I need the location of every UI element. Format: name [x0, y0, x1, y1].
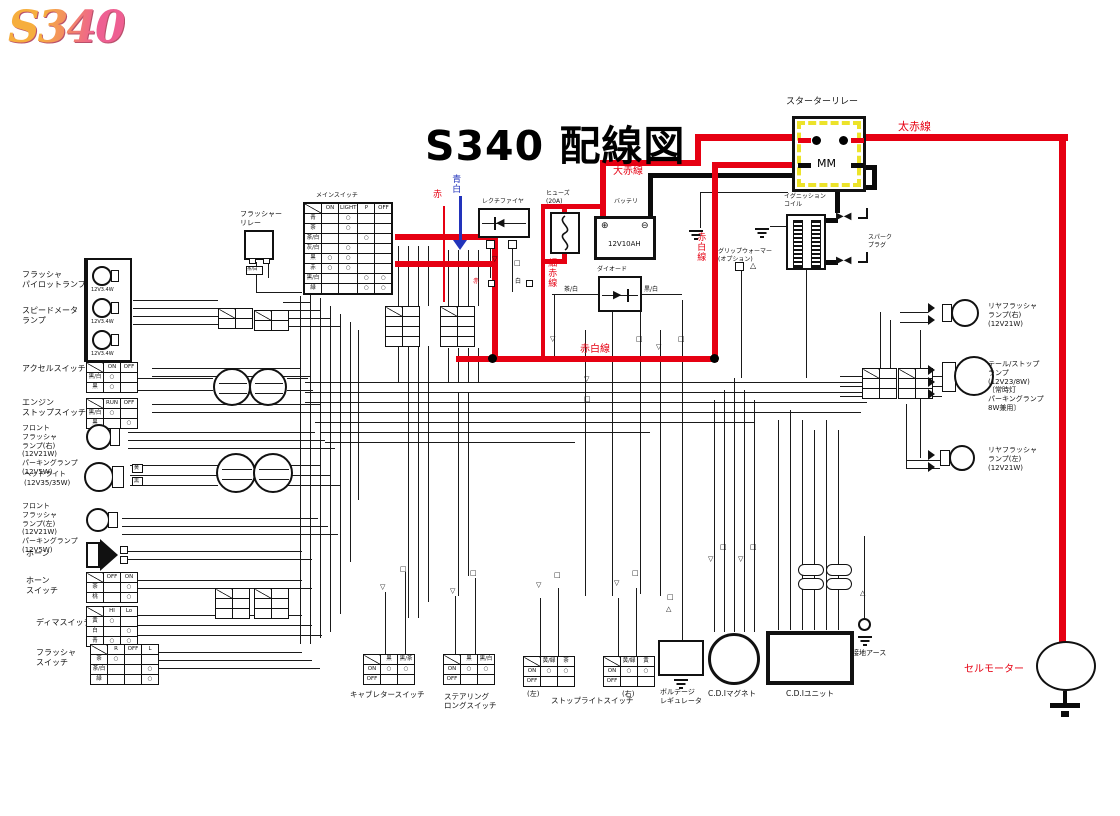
wire [128, 432, 315, 433]
junction-dot [710, 354, 719, 363]
main-switch-table: ONLIGHTPOFF青○茶○茶/白○灰/白○黒○○赤○○黒/白○○緑○○ [303, 202, 393, 295]
page-title: S340 配線図 [425, 112, 685, 172]
bulb-rating: 12V3.4W [91, 351, 114, 357]
table-cell [375, 244, 393, 254]
wire [287, 390, 313, 391]
ignition-coil [786, 214, 826, 270]
capsule-connector [826, 564, 852, 576]
table-cell: 茶 [87, 583, 104, 593]
wire [133, 300, 218, 301]
bullet-connector-icon [928, 450, 935, 460]
relay-contact [839, 136, 848, 145]
relay-terminal [798, 163, 811, 168]
table-cell: ON [524, 667, 541, 677]
table-cell: 黒/白 [87, 373, 104, 383]
starter-relay-label: スターターリレー [786, 97, 858, 108]
table-cell [863, 369, 880, 379]
table-cell [358, 224, 375, 234]
wire [287, 378, 308, 379]
relay-contact [812, 136, 821, 145]
table-cell [386, 337, 403, 347]
bulb-base [108, 512, 118, 528]
table-cell [375, 254, 393, 264]
wire [714, 400, 715, 632]
red-wire [492, 234, 498, 360]
flasher-switch-label: フラッシャ スイッチ [36, 648, 76, 668]
table-cell [899, 379, 916, 389]
table-cell: ON [444, 665, 461, 675]
speedo-lamp-label: スピードメータ ランプ [22, 306, 78, 326]
coil-winding [793, 220, 803, 268]
table-cell: LIGHT [339, 203, 358, 214]
connector-symbol-icon: □ [470, 570, 477, 577]
table-cell [375, 214, 393, 224]
table-cell [381, 675, 398, 685]
battery-label: バッテリ [614, 198, 638, 206]
wire [618, 598, 619, 656]
rear-flasher-left-label: リヤフラッシャ ランプ(左) (12V21W) [988, 446, 1037, 472]
table-cell: OFF [444, 675, 461, 685]
connector-symbol-icon: ▽ [584, 376, 589, 383]
table-cell [125, 675, 142, 685]
wire [640, 294, 682, 295]
table-cell [104, 583, 121, 593]
wire [142, 668, 320, 669]
wire [287, 475, 330, 476]
table-cell: ○ [375, 284, 393, 295]
flasher-relay-wire-code: 茶/白 [247, 267, 258, 273]
wire [320, 432, 650, 433]
wire [122, 518, 318, 519]
cdi-unit [766, 631, 854, 685]
table-cell: ○ [339, 214, 358, 224]
table-cell: OFF [364, 675, 381, 685]
ground-label: 接地アース [852, 649, 886, 658]
table-cell [339, 284, 358, 295]
table-cell [233, 589, 250, 599]
table-cell: ○ [558, 667, 575, 677]
wire [325, 442, 575, 443]
connector-symbol-icon: ▽ [738, 556, 743, 563]
bulb-base [110, 428, 120, 446]
accel-switch-table: ONOFF黒/白○黒○ [86, 362, 138, 393]
table-cell [104, 627, 121, 637]
table-cell [322, 234, 339, 244]
connector-symbol-icon: ▽ [614, 580, 619, 587]
wire [405, 572, 406, 654]
wire [135, 378, 213, 379]
rectifier-terminal [486, 240, 495, 249]
junction-dot [488, 354, 497, 363]
capsule-connector [798, 578, 824, 590]
carb-switch-table: 黒黒/茶ON○○OFF [363, 654, 415, 685]
table-cell [216, 599, 233, 609]
table-cell [364, 655, 381, 665]
voltage-regulator [658, 640, 704, 676]
table-cell [272, 609, 289, 619]
ground-terminal [858, 618, 871, 631]
table-cell: 茶 [304, 224, 322, 234]
diode-label: ダイオード [597, 266, 627, 274]
wire [458, 250, 459, 306]
round-connector [253, 453, 293, 493]
table-cell: 緑 [304, 284, 322, 295]
accel-switch-label: アクセルスイッチ [22, 364, 86, 374]
connector-nub [526, 280, 533, 287]
table-cell: 茶/白 [91, 665, 108, 675]
table-cell: ○ [398, 665, 415, 675]
table-cell: ○ [638, 667, 655, 677]
table-cell: OFF [604, 677, 621, 687]
connector-symbol-icon: □ [632, 570, 639, 577]
table-cell: 灰/白 [304, 244, 322, 254]
connector-symbol-icon: ▽ [656, 344, 661, 351]
wire [585, 330, 586, 596]
table-cell: 黒 [461, 655, 478, 665]
table-cell [899, 389, 916, 399]
table-cell: L [142, 645, 159, 655]
plug-hook [858, 208, 868, 219]
diode-symbol-icon: ▶ [613, 289, 621, 300]
dimmer-switch-label: ディマスイッチ [36, 618, 91, 628]
wire [458, 348, 459, 382]
table-cell [386, 317, 403, 327]
table-cell: ○ [121, 593, 138, 603]
table-cell: 黒 [304, 254, 322, 264]
table-cell [142, 655, 159, 665]
red-wire [855, 134, 1068, 141]
stop-tag-right: (右) [622, 690, 634, 699]
stoplight-left-table: 黄/緑茶ON○○OFF [523, 656, 575, 687]
label-thick-red-mid: 大赤線 [613, 166, 643, 179]
table-cell: ○ [322, 254, 339, 264]
wire [315, 422, 755, 423]
table-cell [558, 677, 575, 687]
wire [256, 292, 302, 293]
front-flasher-left-bulb [86, 508, 110, 532]
table-cell: ○ [142, 675, 159, 685]
table-cell: ○ [461, 665, 478, 675]
table-cell [219, 319, 236, 329]
red-wire [712, 162, 793, 168]
table-cell: ○ [121, 627, 138, 637]
label-black-white: 黒/白 [644, 286, 658, 294]
table-cell: ○ [104, 383, 121, 393]
wire [133, 308, 218, 309]
battery-value: 12V10AH [608, 240, 641, 249]
wire [418, 382, 419, 618]
capsule-connector [798, 564, 824, 576]
table-cell [104, 593, 121, 603]
table-cell: 黒/白 [304, 274, 322, 284]
ground-icon [857, 636, 873, 646]
table-cell [403, 337, 420, 347]
flasher-relay-label: フラッシャー リレー [240, 210, 282, 228]
wire [152, 412, 330, 413]
wire-code: 黒 [134, 478, 139, 484]
wire [806, 270, 807, 378]
table-cell [441, 307, 458, 317]
connector-symbol-icon: △ [666, 606, 671, 613]
wire [133, 316, 218, 317]
wire [135, 625, 312, 626]
table-cell: ○ [108, 655, 125, 665]
connector-symbol-icon: △ [860, 590, 865, 597]
relay-terminal [851, 163, 864, 168]
wire [741, 270, 742, 378]
table-cell: ○ [339, 264, 358, 274]
wire [128, 440, 325, 441]
table-cell [880, 379, 897, 389]
round-connector [213, 368, 251, 406]
table-cell: 黄 [638, 657, 655, 667]
bullet-connector-icon [928, 303, 935, 313]
red-wire [695, 134, 795, 141]
wire [660, 330, 661, 596]
cdi-unit-label: C.D.Iユニット [786, 689, 834, 698]
table-cell [899, 369, 916, 379]
bullet-connector-icon [928, 377, 935, 387]
wire [636, 588, 637, 656]
table-cell: RUN [104, 399, 121, 409]
rear-flasher-left-bulb [949, 445, 975, 471]
wire [320, 298, 321, 638]
wire [724, 390, 725, 632]
main-switch-title: メインスイッチ [316, 192, 358, 200]
table-cell: P [358, 203, 375, 214]
wire [408, 346, 409, 382]
front-flasher-right-bulb [86, 424, 112, 450]
connector-symbol-icon: □ [514, 260, 521, 267]
horn-switch-label: ホーン スイッチ [26, 576, 58, 596]
flasher-switch-table: ROFFL茶○茶/白○緑○ [90, 644, 159, 685]
wire [130, 465, 218, 466]
table-cell: ON [121, 573, 138, 583]
wire [268, 262, 269, 278]
label-thin-red: 細赤線 [545, 258, 556, 288]
wire [330, 306, 331, 632]
table-cell [863, 379, 880, 389]
cell-motor-ground [1061, 711, 1069, 717]
connector-block [440, 306, 475, 347]
grip-warmer-terminal-icon: △ [750, 262, 756, 270]
table-cell: 茶 [91, 655, 108, 665]
table-cell [339, 234, 358, 244]
table-cell [272, 321, 289, 331]
table-cell [255, 321, 272, 331]
wire [130, 485, 218, 486]
plug-hook [858, 252, 868, 263]
wire [305, 392, 867, 393]
table-cell [358, 244, 375, 254]
wire [287, 485, 340, 486]
engine-stop-label: エンジン ストップスイッチ [22, 398, 86, 418]
wire [135, 580, 302, 581]
table-cell: 黒/白 [478, 655, 495, 665]
table-cell [863, 389, 880, 399]
wire [478, 348, 479, 382]
spark-plug-icon: ▶◀ [836, 212, 851, 222]
table-cell [87, 573, 104, 583]
wire [906, 404, 907, 468]
table-cell [621, 677, 638, 687]
table-cell [255, 609, 272, 619]
wire [734, 378, 735, 632]
table-cell [375, 264, 393, 274]
wire [408, 246, 409, 306]
cdi-magneto-label: C.D.Iマグネト [708, 689, 756, 698]
table-cell [322, 274, 339, 284]
bulb-base [112, 466, 124, 488]
table-cell: ON [364, 665, 381, 675]
bullet-connector-icon [928, 315, 935, 325]
table-cell: OFF [104, 573, 121, 583]
table-cell: ○ [381, 665, 398, 675]
wire [790, 410, 791, 630]
table-cell [441, 317, 458, 327]
red-wire [1059, 134, 1066, 650]
table-cell: OFF [125, 645, 142, 655]
stoplight-right-table: 黄/緑黄ON○○OFF [603, 656, 655, 687]
table-cell [880, 369, 897, 379]
connector-block [254, 310, 289, 331]
red-wire [443, 206, 445, 302]
wire [700, 192, 701, 228]
table-cell [121, 373, 138, 383]
pilot-lamp-label: フラッシャ パイロットランプ [22, 270, 86, 290]
wire [458, 392, 459, 596]
lamp-cluster: 12V3.4W 12V3.4W 12V3.4W [84, 258, 132, 362]
wire [744, 390, 745, 632]
table-cell [255, 589, 272, 599]
connector-block [254, 588, 289, 619]
wire [283, 326, 340, 327]
relay-yellow-border [797, 121, 861, 187]
connector-symbol-icon: □ [720, 544, 727, 551]
bullet-connector-icon [928, 389, 935, 399]
table-cell [272, 599, 289, 609]
horn-label: ホーン [26, 549, 50, 559]
bulb-rating: 12V3.4W [91, 319, 114, 325]
battery-minus-icon: ⊖ [641, 222, 649, 231]
table-cell [236, 319, 253, 329]
ignition-coil-label: イグニッション コイル [784, 193, 826, 208]
bullet-connector-icon [928, 365, 935, 375]
table-cell: ○ [104, 617, 121, 627]
table-cell: ○ [621, 667, 638, 677]
wire [864, 536, 865, 618]
steering-switch-label: ステアリング ロングスイッチ [444, 692, 497, 711]
table-cell [125, 665, 142, 675]
cdi-magneto [708, 633, 760, 685]
table-cell [880, 389, 897, 399]
table-cell: ○ [339, 244, 358, 254]
table-cell [304, 203, 322, 214]
table-cell: 茶 [558, 657, 575, 667]
table-cell [91, 645, 108, 655]
wire [428, 246, 429, 306]
horn-switch-table: OFFON茶○桃○ [86, 572, 138, 603]
wire [468, 392, 469, 576]
table-cell: Lo [121, 607, 138, 617]
flasher-relay [244, 230, 274, 260]
wire [122, 534, 338, 535]
relay-text: MM [817, 157, 836, 171]
front-flasher-right-label: フロント フラッシャ ランプ(右) (12V21W) パーキングランプ (12V… [22, 424, 78, 477]
table-cell [386, 307, 403, 317]
wire [305, 412, 861, 413]
ground-icon [688, 230, 704, 240]
rectifier: ◀ [478, 208, 530, 238]
wire [418, 246, 419, 306]
table-cell [87, 363, 104, 373]
table-cell [604, 657, 621, 667]
wire [475, 578, 476, 654]
table-cell [441, 337, 458, 347]
wire [455, 596, 456, 654]
wire [428, 346, 429, 382]
table-cell: 黄/緑 [541, 657, 558, 667]
connector-symbol-icon: □ [636, 336, 643, 343]
table-cell: 黒/白 [87, 409, 104, 419]
table-cell: 黒/茶 [398, 655, 415, 665]
wire [840, 386, 862, 387]
table-cell: ○ [104, 409, 121, 419]
wire [754, 400, 755, 632]
connector-nub [488, 280, 495, 287]
wire [340, 314, 341, 614]
carb-switch-label: キャブレタースイッチ [350, 690, 425, 699]
spark-plug-label: スパーク プラグ [868, 234, 892, 249]
round-connector [249, 368, 287, 406]
wire [385, 592, 386, 654]
connector-block [385, 306, 420, 347]
wire [826, 420, 827, 630]
battery-plus-icon: ⊕ [601, 222, 609, 231]
wire [900, 322, 928, 323]
label-red-small: 赤 [473, 278, 479, 286]
table-cell [541, 677, 558, 687]
table-cell [233, 609, 250, 619]
table-cell [322, 214, 339, 224]
table-cell [478, 675, 495, 685]
wire [283, 302, 310, 303]
label-blue-white-wire: 青白 [449, 174, 460, 194]
table-cell: 黄/緑 [621, 657, 638, 667]
connector-block [215, 588, 250, 619]
table-cell: 白 [87, 627, 104, 637]
table-cell [219, 309, 236, 319]
connector-symbol-icon: □ [584, 396, 591, 403]
wire [838, 430, 839, 630]
wire [418, 346, 419, 382]
wire [133, 324, 218, 325]
table-cell [272, 311, 289, 321]
wire [880, 312, 881, 372]
blue-wire [459, 196, 462, 242]
table-cell: 茶/白 [304, 234, 322, 244]
capsule-connector [826, 578, 852, 590]
table-cell [441, 327, 458, 337]
table-cell [322, 224, 339, 234]
wire [398, 346, 399, 382]
wire [283, 318, 330, 319]
connector-symbol-icon: ▽ [380, 584, 385, 591]
label-white-small: 白 [515, 278, 521, 286]
wire [840, 396, 862, 397]
table-cell: ○ [478, 665, 495, 675]
blue-arrow-down-icon [453, 240, 467, 250]
